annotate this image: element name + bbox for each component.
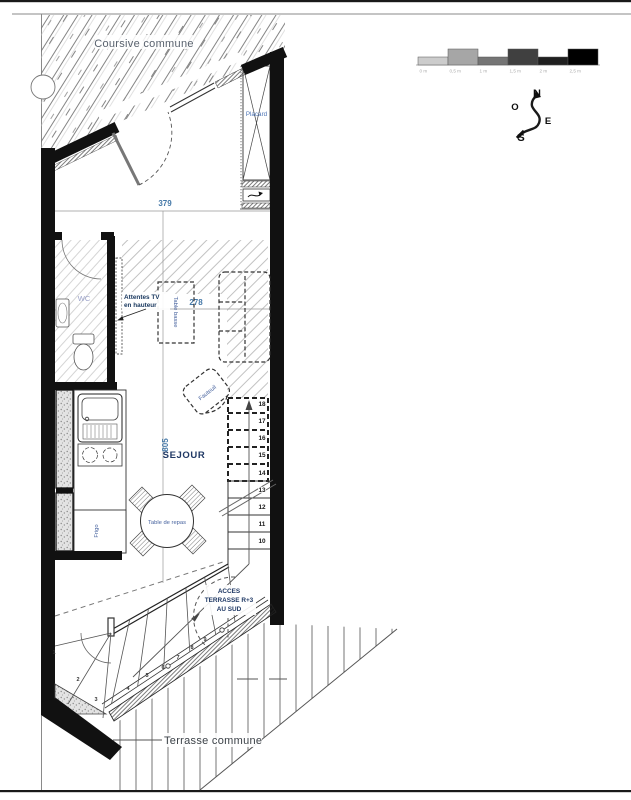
compass-north: N (533, 88, 541, 100)
toilet-tank (73, 334, 94, 344)
fridge (74, 510, 126, 553)
step-number: 10 (258, 538, 266, 545)
scale-bar-label: 1,5 m (510, 69, 522, 74)
step-number: 1 (52, 650, 55, 656)
step-number: 18 (258, 401, 266, 408)
scale-bar-segment (478, 57, 508, 65)
door-handle (166, 664, 170, 668)
scale-bar-label: 2 m (540, 69, 548, 74)
attentes-label-2: en hauteur (124, 302, 157, 309)
step-number: 7 (176, 655, 179, 661)
step-number: 3 (94, 697, 97, 703)
step-number: 5 (145, 673, 148, 679)
coursive-label: Coursive commune (94, 38, 194, 50)
wall-west (41, 148, 55, 704)
dim-278: 278 (189, 298, 203, 307)
sejour-label: SEJOUR (163, 450, 206, 461)
plan-page: Coursive commune Terrasse commune 379 27… (0, 0, 631, 800)
scale-bar-segment (448, 49, 478, 65)
technical-duct (56, 390, 73, 488)
technical-duct (56, 493, 73, 551)
acces-label-2: TERRASSE R+3 (205, 597, 254, 604)
step-number: 8 (190, 645, 193, 651)
vent-unit (243, 189, 270, 201)
scale-bar-segment (538, 57, 568, 65)
step-number: 12 (258, 504, 266, 511)
compass-swoosh (518, 95, 540, 136)
attentes-label-1: Attentes TV (124, 294, 160, 301)
dining-table-label: Table de repas (148, 520, 186, 526)
column (31, 75, 55, 99)
door-handle (220, 628, 224, 632)
kitchen: Frigo (55, 382, 126, 560)
scale-bar-segment (508, 49, 538, 65)
step-number: 16 (258, 435, 266, 442)
placard-label: Placard (246, 111, 268, 118)
scale-bar: 0 m0,5 m1 m1,5 m2 m2,5 m (416, 49, 600, 74)
compass-west: O (511, 102, 518, 113)
upper-step-numbers: 101112131415161718 (258, 401, 266, 545)
compass-south: S (517, 132, 524, 144)
step-number: 14 (258, 470, 266, 477)
toilet-bowl (74, 344, 93, 370)
scale-bar-segment (418, 57, 448, 65)
kitchen-sink (78, 394, 122, 442)
scale-bar-label: 2,5 m (570, 69, 582, 74)
step-number: 15 (258, 452, 266, 459)
step-number: 17 (258, 418, 266, 425)
scale-bar-label: 0 m (420, 69, 428, 74)
compass-rose: N O E S (511, 88, 551, 144)
acces-label-1: ACCES (218, 588, 241, 595)
terrasse-label: Terrasse commune (164, 735, 262, 747)
floor-plan-drawing: Coursive commune Terrasse commune 379 27… (0, 0, 631, 800)
dim-379: 379 (158, 199, 172, 208)
wall-east (270, 52, 284, 625)
compass-east: E (545, 116, 551, 127)
wc-label: WC (78, 294, 91, 303)
tv-wall-strip (116, 258, 122, 354)
step-number: 9 (203, 637, 206, 643)
wc-partition-wall (107, 236, 115, 390)
coffee-table-label: Table basse (172, 297, 178, 328)
step-number: 11 (259, 521, 266, 528)
step-number: 6 (161, 665, 164, 671)
scale-bar-segment (568, 49, 598, 65)
scale-bar-label: 0,5 m (450, 69, 462, 74)
step-number: 13 (258, 487, 266, 494)
cooktop (78, 444, 122, 466)
fridge-label: Frigo (94, 524, 100, 537)
scale-bar-label: 1 m (480, 69, 488, 74)
acces-label-3: AU SUD (217, 606, 242, 613)
step-number: 2 (76, 677, 79, 683)
